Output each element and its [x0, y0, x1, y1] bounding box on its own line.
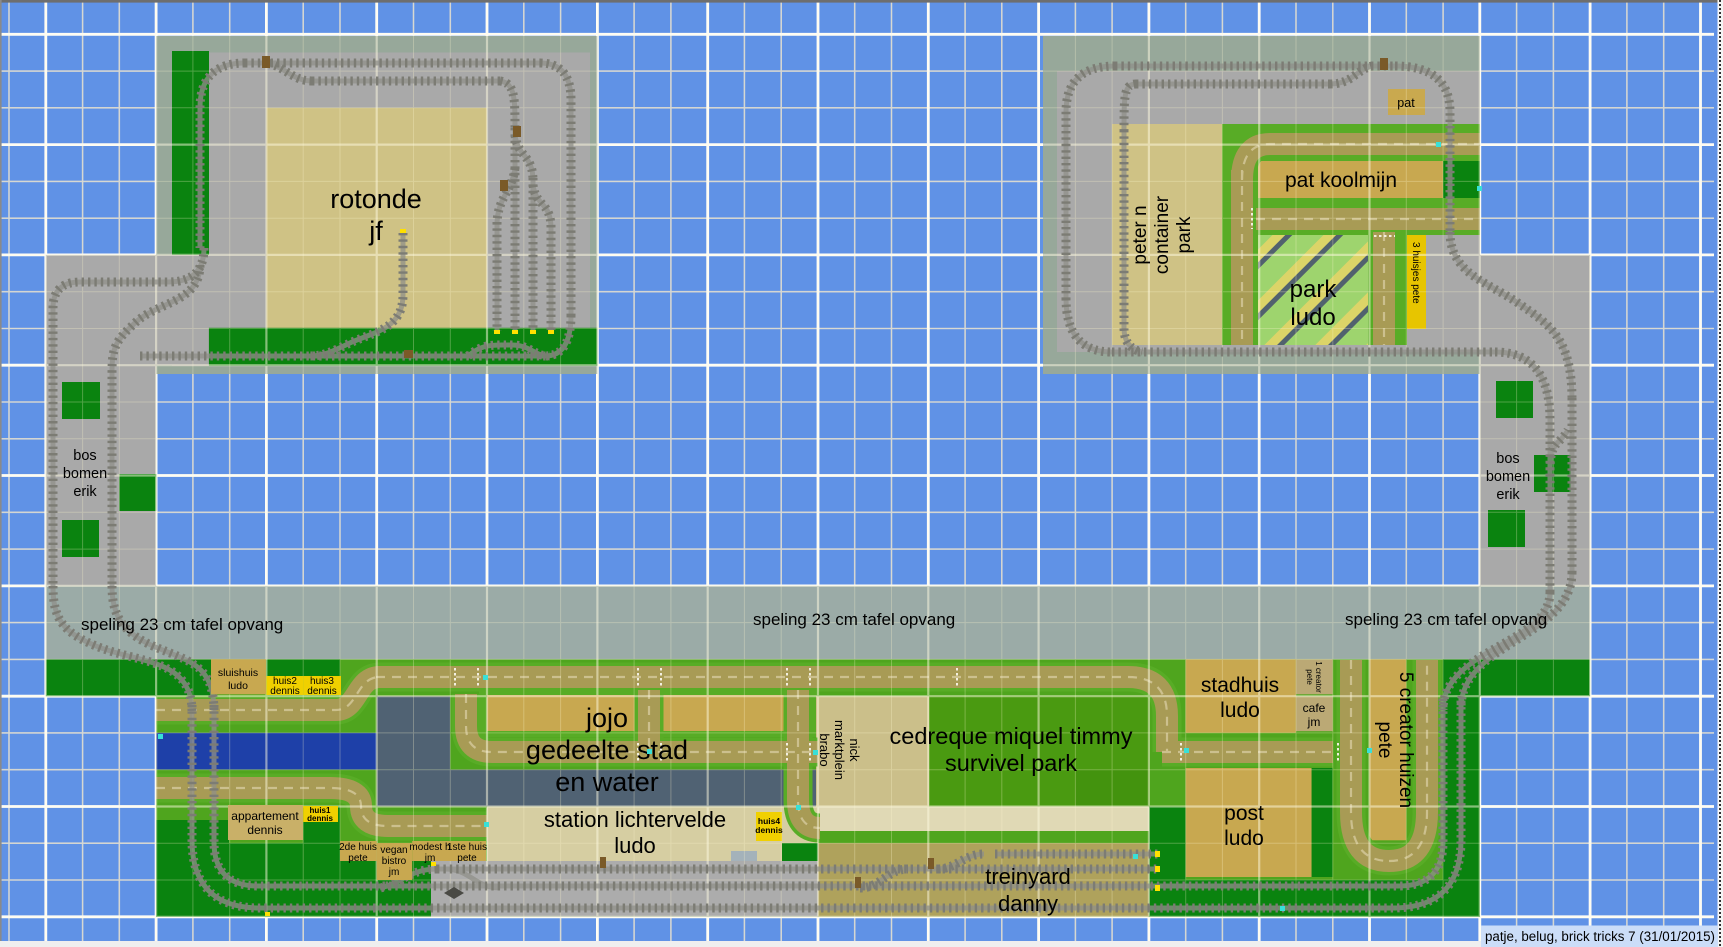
- svg-text:dennis: dennis: [270, 686, 299, 697]
- svg-text:survivel park: survivel park: [945, 750, 1077, 776]
- svg-text:3 huisjes pete: 3 huisjes pete: [1410, 242, 1421, 304]
- svg-text:dennis: dennis: [247, 823, 282, 837]
- svg-text:park: park: [1290, 276, 1338, 303]
- svg-text:vegan: vegan: [380, 845, 407, 856]
- svg-text:bos: bos: [73, 448, 96, 464]
- svg-text:jojo: jojo: [585, 703, 628, 733]
- svg-text:sluishuis: sluishuis: [218, 667, 258, 679]
- svg-text:appartement: appartement: [231, 809, 299, 823]
- svg-text:ludo: ludo: [614, 833, 656, 858]
- svg-text:dennis: dennis: [307, 686, 336, 697]
- svg-text:cedreque miquel timmy: cedreque miquel timmy: [890, 723, 1133, 749]
- svg-text:pete: pete: [457, 853, 477, 864]
- svg-text:post: post: [1224, 802, 1264, 825]
- svg-text:jm: jm: [388, 867, 400, 878]
- svg-text:1 creator: 1 creator: [1314, 661, 1323, 693]
- svg-text:patje, belug, brick tricks 7 (: patje, belug, brick tricks 7 (31/01/2015…: [1485, 929, 1715, 944]
- svg-text:bomen: bomen: [1486, 469, 1530, 485]
- svg-text:danny: danny: [998, 891, 1058, 916]
- svg-text:ludo: ludo: [1224, 827, 1264, 850]
- svg-text:speling 23 cm tafel opvang: speling 23 cm tafel opvang: [1345, 610, 1547, 629]
- svg-text:erik: erik: [1496, 487, 1520, 503]
- svg-text:ludo: ludo: [1290, 304, 1335, 331]
- svg-text:pete: pete: [348, 853, 368, 864]
- svg-text:nick: nick: [847, 738, 862, 762]
- svg-text:treinyard: treinyard: [985, 864, 1071, 889]
- svg-text:bistro: bistro: [382, 856, 407, 867]
- svg-text:park: park: [1174, 216, 1195, 253]
- svg-text:5 creator huizen: 5 creator huizen: [1395, 672, 1416, 808]
- svg-text:bos: bos: [1496, 451, 1519, 467]
- svg-text:pat koolmijn: pat koolmijn: [1285, 169, 1397, 192]
- svg-text:modest h: modest h: [409, 842, 450, 853]
- svg-text:ludo: ludo: [1220, 699, 1260, 722]
- svg-text:gedeelte stad: gedeelte stad: [526, 735, 688, 765]
- svg-text:container: container: [1152, 195, 1173, 274]
- svg-text:dennis: dennis: [755, 825, 783, 835]
- svg-text:rotonde: rotonde: [330, 184, 422, 214]
- svg-text:jf: jf: [368, 216, 383, 246]
- svg-text:peter n: peter n: [1130, 205, 1151, 264]
- svg-text:brabo: brabo: [817, 733, 832, 766]
- svg-text:ludo: ludo: [228, 680, 248, 692]
- svg-text:jm: jm: [1307, 715, 1321, 729]
- svg-text:speling 23 cm tafel opvang: speling 23 cm tafel opvang: [81, 615, 283, 634]
- svg-text:cafe: cafe: [1303, 701, 1326, 715]
- svg-text:speling 23 cm tafel opvang: speling 23 cm tafel opvang: [753, 610, 955, 629]
- svg-text:1ste huis: 1ste huis: [447, 842, 487, 853]
- svg-text:pat: pat: [1397, 96, 1415, 110]
- svg-text:dennis: dennis: [307, 814, 333, 823]
- svg-text:pete: pete: [1305, 669, 1314, 685]
- svg-text:pete: pete: [1374, 722, 1395, 759]
- svg-text:erik: erik: [73, 484, 97, 500]
- svg-text:en water: en water: [555, 767, 659, 797]
- svg-text:bomen: bomen: [63, 466, 107, 482]
- svg-text:station lichtervelde: station lichtervelde: [544, 807, 726, 832]
- svg-text:2de huis: 2de huis: [339, 842, 377, 853]
- svg-text:stadhuis: stadhuis: [1201, 674, 1279, 697]
- svg-text:marktplein: marktplein: [832, 720, 847, 780]
